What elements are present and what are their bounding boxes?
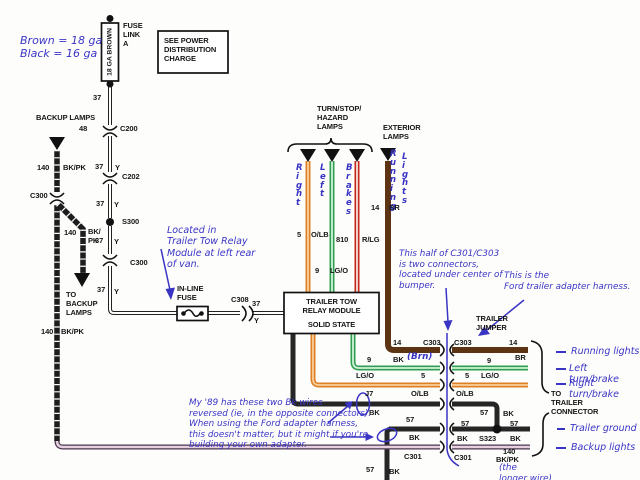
relay-location-note: Located in Trailer Tow Relay Module at l… xyxy=(167,225,255,271)
circuit-57-label-4: 57 xyxy=(510,419,518,428)
color-bkpk-label-2: BK/ PK xyxy=(88,227,101,245)
connector-c301-left-label: C301 xyxy=(404,452,422,461)
color-bk-label-e: BK xyxy=(457,434,468,443)
circuit-j7-label: J7 xyxy=(365,389,373,398)
color-olb-label-2: O/LB xyxy=(411,389,429,398)
running-lights-label: Running lights xyxy=(571,346,639,357)
turn-stop-hazard-label: TURN/STOP/ HAZARD LAMPS xyxy=(317,104,361,131)
circuit-140-label-2: 140 xyxy=(64,228,76,237)
circuit-9-label-1: 9 xyxy=(315,266,319,275)
circuit-5-label-1: 5 xyxy=(297,230,301,239)
connector-c303-left-label: C303 xyxy=(423,338,441,347)
color-bkpk-label-3: BK/PK xyxy=(61,327,84,336)
relay-module-title: TRAILER TOW RELAY MODULE xyxy=(284,297,379,315)
circuit-5-label-3: 5 xyxy=(465,371,469,380)
to-backup-lamps-label: TO BACKUP LAMPS xyxy=(66,290,97,317)
inline-fuse-label: IN-LINE FUSE xyxy=(177,284,203,302)
circuit-140-label-3: 140 xyxy=(41,327,53,336)
circuit-57-label-3: 57 xyxy=(461,419,469,428)
color-olb-label-1: O/LB xyxy=(311,230,329,239)
wire-gauge-note: Brown = 18 ga Black = 16 ga xyxy=(20,34,102,60)
fuse-link-bottom-dot xyxy=(107,81,114,88)
left-wire-tag: Left xyxy=(320,164,325,199)
connector-c303-right-label: C303 xyxy=(454,338,472,347)
connector-c200-label: C200 xyxy=(120,124,138,133)
circuit-14-label-1: 14 xyxy=(371,203,379,212)
connector-c301-right-label: C301 xyxy=(454,453,472,462)
backup-lights-label: Backup lights xyxy=(571,442,635,453)
fuse-link-label: FUSE LINK A xyxy=(123,21,143,48)
color-br-label-1: BR xyxy=(389,203,400,212)
connector-c308-label: C308 xyxy=(231,295,249,304)
color-lgo-label-3: LG/O xyxy=(481,371,499,380)
color-bk-label-f: BK xyxy=(510,434,521,443)
color-y-label-3: Y xyxy=(114,237,119,246)
circuit-57-label-2: 57 xyxy=(406,415,414,424)
circuit-37-label-3: 37 xyxy=(96,199,104,208)
splice-s323-label: S323 xyxy=(479,434,496,443)
circuit-48-label: 48 xyxy=(79,124,87,133)
color-bkpk-label-1: BK/PK xyxy=(63,163,86,172)
splice-s323 xyxy=(493,425,502,434)
color-bk-label-g: BK xyxy=(389,467,400,476)
fuse-link-top-dot xyxy=(107,15,114,22)
inline-fuse-symbol xyxy=(177,307,208,321)
trailer-ground-label: Trailer ground xyxy=(570,423,637,434)
longer-wire-note: (the longer wire) xyxy=(499,463,552,480)
circuit-9-label-2: 9 xyxy=(367,355,371,364)
circuit-5-label-2: 5 xyxy=(421,371,425,380)
circuit-57-label-1: 57 xyxy=(480,408,488,417)
splice-s300-label: S300 xyxy=(122,217,139,226)
circuit-37-label-1: 37 xyxy=(93,93,101,102)
color-y-label-4: Y xyxy=(114,287,119,296)
circuit-57-label-5: 57 xyxy=(366,465,374,474)
color-bk-label-d: BK xyxy=(409,433,420,442)
connector-split-note: This half of C301/C303 is two connectors… xyxy=(399,249,502,291)
circuit-37-label-6: 37 xyxy=(252,299,260,308)
right-wire-tag: Right xyxy=(296,164,301,208)
trailer-connector-brace xyxy=(531,341,549,456)
exterior-lamps-label: EXTERIOR LAMPS xyxy=(383,123,421,141)
circuit-14-label-3: 14 xyxy=(509,338,517,347)
color-bk-label-a: BK xyxy=(393,355,404,364)
connector-c202-label: C202 xyxy=(122,172,140,181)
circuit-9-label-3: 9 xyxy=(487,356,491,365)
color-y-label-5: Y xyxy=(254,316,259,325)
connector-c300-left-label: C300 xyxy=(30,191,48,200)
reversed-wires-note: My '89 has these two Bk wires reversed (… xyxy=(189,398,371,451)
trailer-jumper-label: TRAILER JUMPER xyxy=(476,314,508,332)
brakes-wire-tag: Brakes xyxy=(346,164,351,217)
fuse-link-wire-label: 18 GA BROWN xyxy=(107,28,114,76)
backup-lamps-label: BACKUP LAMPS xyxy=(36,113,95,122)
brn-correction-note: (Brn) xyxy=(407,352,432,363)
color-y-label-2: Y xyxy=(114,200,119,209)
circuit-140-label-1: 140 xyxy=(37,163,49,172)
circuit-37-label-5: 37 xyxy=(97,285,105,294)
color-y-label-1: Y xyxy=(115,163,120,172)
splice-s300 xyxy=(106,218,114,226)
circuit-37-label-2: 37 xyxy=(95,162,103,171)
right-turn-brake-label: Right turn/brake xyxy=(569,378,640,401)
connector-c300-right-label: C300 xyxy=(130,258,148,267)
color-br-label-2: BR xyxy=(515,353,526,362)
color-bk-label-c: BK xyxy=(503,409,514,418)
color-lgo-label-2: LG/O xyxy=(356,371,374,380)
color-lgo-label-1: LG/O xyxy=(330,266,348,275)
lights-wire-tag: Lights xyxy=(402,153,407,206)
circuit-810-label: 810 xyxy=(336,235,348,244)
color-olb-label-3: O/LB xyxy=(456,389,474,398)
color-rlg-label: R/LG xyxy=(362,235,380,244)
power-distribution-note: SEE POWER DISTRIBUTION CHARGE xyxy=(164,36,216,63)
adapter-harness-note: This is the Ford trailer adapter harness… xyxy=(504,271,630,292)
trailer-wiring-diagram: Brown = 18 ga Black = 16 ga FUSE LINK A … xyxy=(0,0,640,480)
relay-module-subtitle: SOLID STATE xyxy=(284,320,379,329)
circuit-14-label-2: 14 xyxy=(393,338,401,347)
circuit-37-yellow-wire xyxy=(110,87,284,313)
